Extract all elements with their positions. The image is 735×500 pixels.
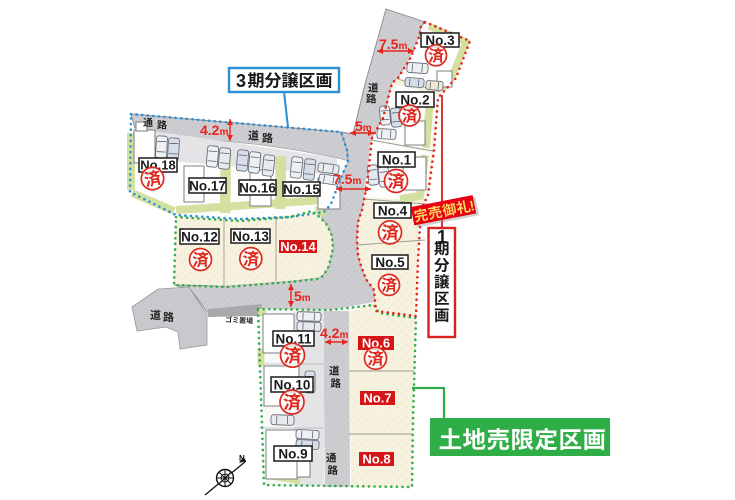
svg-text:No.4: No.4	[378, 203, 408, 218]
svg-text:No.12: No.12	[181, 229, 218, 244]
svg-text:No.13: No.13	[232, 229, 269, 244]
svg-text:No.17: No.17	[189, 178, 226, 193]
svg-text:No.2: No.2	[400, 92, 429, 107]
svg-text:No.1: No.1	[382, 152, 412, 167]
svg-text:No.7: No.7	[363, 391, 391, 406]
svg-text:No.9: No.9	[278, 446, 307, 461]
svg-text:No.5: No.5	[375, 255, 405, 270]
svg-text:N: N	[239, 454, 245, 463]
svg-text:No.8: No.8	[362, 452, 390, 467]
svg-text:No.15: No.15	[283, 182, 320, 197]
svg-text:3: 3	[236, 71, 246, 91]
svg-text:No.14: No.14	[280, 239, 316, 254]
svg-text:No.16: No.16	[239, 180, 276, 195]
